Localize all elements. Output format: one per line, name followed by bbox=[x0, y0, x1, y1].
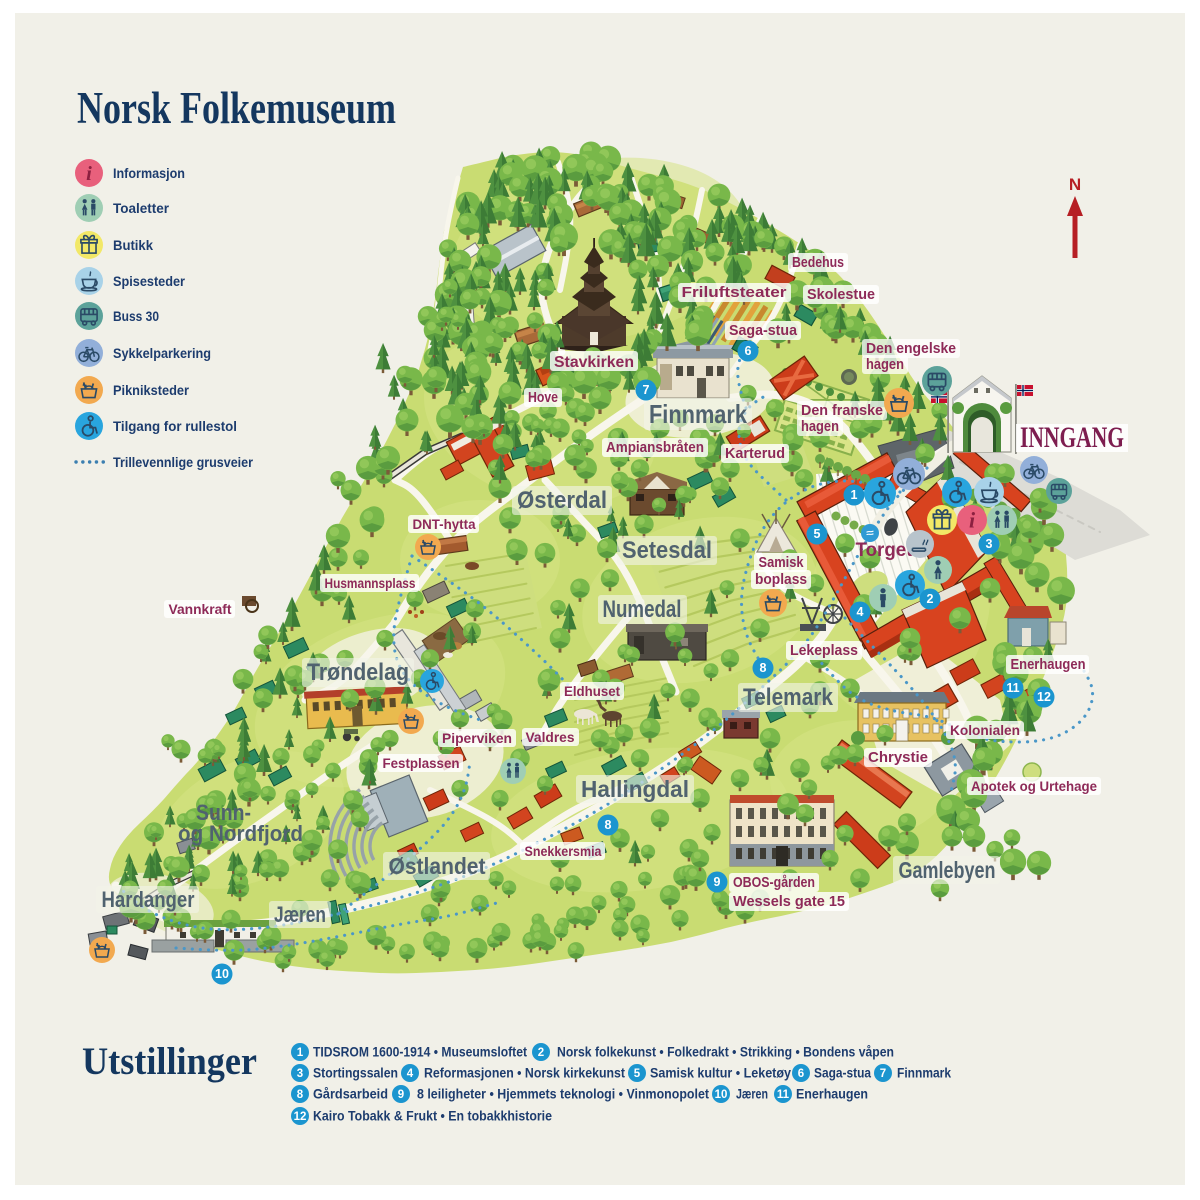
svg-text:8: 8 bbox=[297, 1089, 304, 1101]
svg-text:Samisk kultur • Leketøy: Samisk kultur • Leketøy bbox=[650, 1066, 791, 1081]
svg-text:4: 4 bbox=[407, 1068, 414, 1080]
svg-text:11: 11 bbox=[1006, 681, 1019, 695]
svg-text:3: 3 bbox=[986, 537, 993, 551]
svg-text:8 leiligheter • Hjemmets tekno: 8 leiligheter • Hjemmets teknologi • Vin… bbox=[417, 1087, 709, 1102]
svg-text:INNGANG: INNGANG bbox=[1020, 421, 1124, 454]
svg-text:Saga-stua: Saga-stua bbox=[729, 322, 798, 339]
svg-text:Buss 30: Buss 30 bbox=[113, 308, 159, 324]
svg-text:Chrystie: Chrystie bbox=[868, 749, 928, 766]
svg-text:Sykkelparkering: Sykkelparkering bbox=[113, 345, 211, 361]
svg-text:Enerhaugen: Enerhaugen bbox=[1011, 656, 1086, 673]
svg-text:Karterud: Karterud bbox=[725, 445, 785, 462]
svg-text:Stavkirken: Stavkirken bbox=[554, 354, 634, 371]
svg-text:Apotek og Urtehage: Apotek og Urtehage bbox=[971, 778, 1097, 794]
svg-text:Festplassen: Festplassen bbox=[383, 755, 460, 771]
svg-text:6: 6 bbox=[745, 344, 752, 358]
svg-text:Snekkersmia: Snekkersmia bbox=[525, 843, 602, 859]
svg-text:5: 5 bbox=[634, 1068, 641, 1080]
svg-text:Kolonialen: Kolonialen bbox=[950, 722, 1020, 738]
svg-text:Enerhaugen: Enerhaugen bbox=[796, 1087, 868, 1102]
svg-text:Bedehus: Bedehus bbox=[792, 254, 844, 271]
svg-text:Hardanger: Hardanger bbox=[102, 887, 195, 912]
svg-text:Trillevennlige grusveier: Trillevennlige grusveier bbox=[113, 454, 253, 470]
svg-text:Jæren: Jæren bbox=[736, 1087, 768, 1102]
svg-text:9: 9 bbox=[398, 1089, 404, 1101]
svg-text:7: 7 bbox=[643, 383, 650, 397]
svg-text:Tilgang for rullestol: Tilgang for rullestol bbox=[113, 418, 237, 434]
svg-text:OBOS-gården: OBOS-gården bbox=[733, 874, 815, 891]
svg-text:Jæren: Jæren bbox=[274, 902, 326, 927]
svg-text:8: 8 bbox=[605, 818, 612, 832]
svg-text:Setesdal: Setesdal bbox=[622, 537, 712, 564]
svg-text:Numedal: Numedal bbox=[603, 596, 682, 623]
svg-text:Hallingdal: Hallingdal bbox=[581, 776, 689, 802]
svg-text:Lekeplass: Lekeplass bbox=[790, 642, 858, 659]
svg-text:og Nordfjord: og Nordfjord bbox=[178, 821, 303, 846]
svg-text:7: 7 bbox=[880, 1068, 886, 1080]
svg-text:boplass: boplass bbox=[755, 571, 807, 588]
svg-text:9: 9 bbox=[714, 875, 721, 889]
svg-text:N: N bbox=[1069, 175, 1081, 194]
svg-text:Toaletter: Toaletter bbox=[113, 200, 170, 216]
svg-text:4: 4 bbox=[857, 605, 864, 619]
svg-text:10: 10 bbox=[215, 967, 229, 981]
svg-text:Pikniksteder: Pikniksteder bbox=[113, 382, 190, 398]
svg-text:Østerdal: Østerdal bbox=[517, 487, 607, 514]
svg-text:Ampiansbråten: Ampiansbråten bbox=[606, 439, 704, 456]
svg-text:Østlandet: Østlandet bbox=[389, 853, 486, 879]
svg-text:Spisesteder: Spisesteder bbox=[113, 273, 185, 289]
svg-text:Finnmark: Finnmark bbox=[649, 399, 747, 429]
svg-text:Butikk: Butikk bbox=[113, 237, 153, 253]
svg-text:TIDSROM 1600-1914 • Museumslof: TIDSROM 1600-1914 • Museumsloftet bbox=[313, 1045, 527, 1060]
svg-text:Norsk Folkemuseum: Norsk Folkemuseum bbox=[77, 83, 396, 133]
svg-text:Saga-stua: Saga-stua bbox=[814, 1066, 871, 1081]
svg-text:DNT-hytta: DNT-hytta bbox=[413, 516, 476, 532]
svg-text:Vannkraft: Vannkraft bbox=[169, 601, 232, 617]
svg-text:Kairo Tobakk & Frukt • En toba: Kairo Tobakk & Frukt • En tobakkhistorie bbox=[313, 1109, 552, 1124]
svg-text:Eldhuset: Eldhuset bbox=[564, 683, 620, 699]
svg-text:Den franske: Den franske bbox=[801, 402, 883, 419]
svg-text:Friluftsteater: Friluftsteater bbox=[682, 284, 787, 301]
svg-text:1: 1 bbox=[297, 1047, 304, 1059]
svg-text:Torget: Torget bbox=[856, 540, 914, 561]
svg-text:10: 10 bbox=[715, 1089, 728, 1101]
svg-text:Finnmark: Finnmark bbox=[897, 1066, 951, 1081]
svg-text:Norsk folkekunst • Folkedrakt: Norsk folkekunst • Folkedrakt • Strikkin… bbox=[557, 1045, 894, 1060]
svg-text:Stortingssalen: Stortingssalen bbox=[313, 1066, 398, 1081]
svg-text:1: 1 bbox=[851, 488, 858, 502]
svg-text:12: 12 bbox=[294, 1111, 307, 1123]
svg-text:Den engelske: Den engelske bbox=[866, 340, 956, 357]
svg-text:Utstillinger: Utstillinger bbox=[82, 1040, 257, 1083]
svg-text:Husmannsplass: Husmannsplass bbox=[325, 575, 416, 591]
svg-text:Wessels gate 15: Wessels gate 15 bbox=[733, 893, 845, 910]
svg-text:8: 8 bbox=[760, 661, 767, 675]
svg-text:Gamlebyen: Gamlebyen bbox=[899, 857, 996, 883]
svg-text:hagen: hagen bbox=[801, 418, 839, 435]
svg-text:5: 5 bbox=[814, 527, 821, 541]
svg-text:12: 12 bbox=[1037, 690, 1051, 704]
svg-text:Samisk: Samisk bbox=[759, 554, 805, 571]
svg-text:Hove: Hove bbox=[528, 389, 558, 406]
svg-text:Gårdsarbeid: Gårdsarbeid bbox=[313, 1087, 388, 1102]
svg-text:6: 6 bbox=[798, 1068, 804, 1080]
svg-text:hagen: hagen bbox=[866, 356, 904, 373]
svg-text:2: 2 bbox=[927, 592, 934, 606]
svg-text:Telemark: Telemark bbox=[743, 684, 834, 711]
svg-text:Trøndelag: Trøndelag bbox=[307, 659, 409, 686]
svg-text:Informasjon: Informasjon bbox=[113, 165, 185, 181]
svg-text:3: 3 bbox=[297, 1068, 303, 1080]
svg-text:Reformasjonen • Norsk kirkekun: Reformasjonen • Norsk kirkekunst bbox=[424, 1066, 625, 1081]
svg-text:Skolestue: Skolestue bbox=[807, 286, 875, 303]
svg-text:Piperviken: Piperviken bbox=[442, 730, 512, 746]
svg-text:Valdres: Valdres bbox=[526, 729, 575, 745]
svg-text:2: 2 bbox=[538, 1047, 544, 1059]
svg-text:11: 11 bbox=[777, 1089, 790, 1101]
